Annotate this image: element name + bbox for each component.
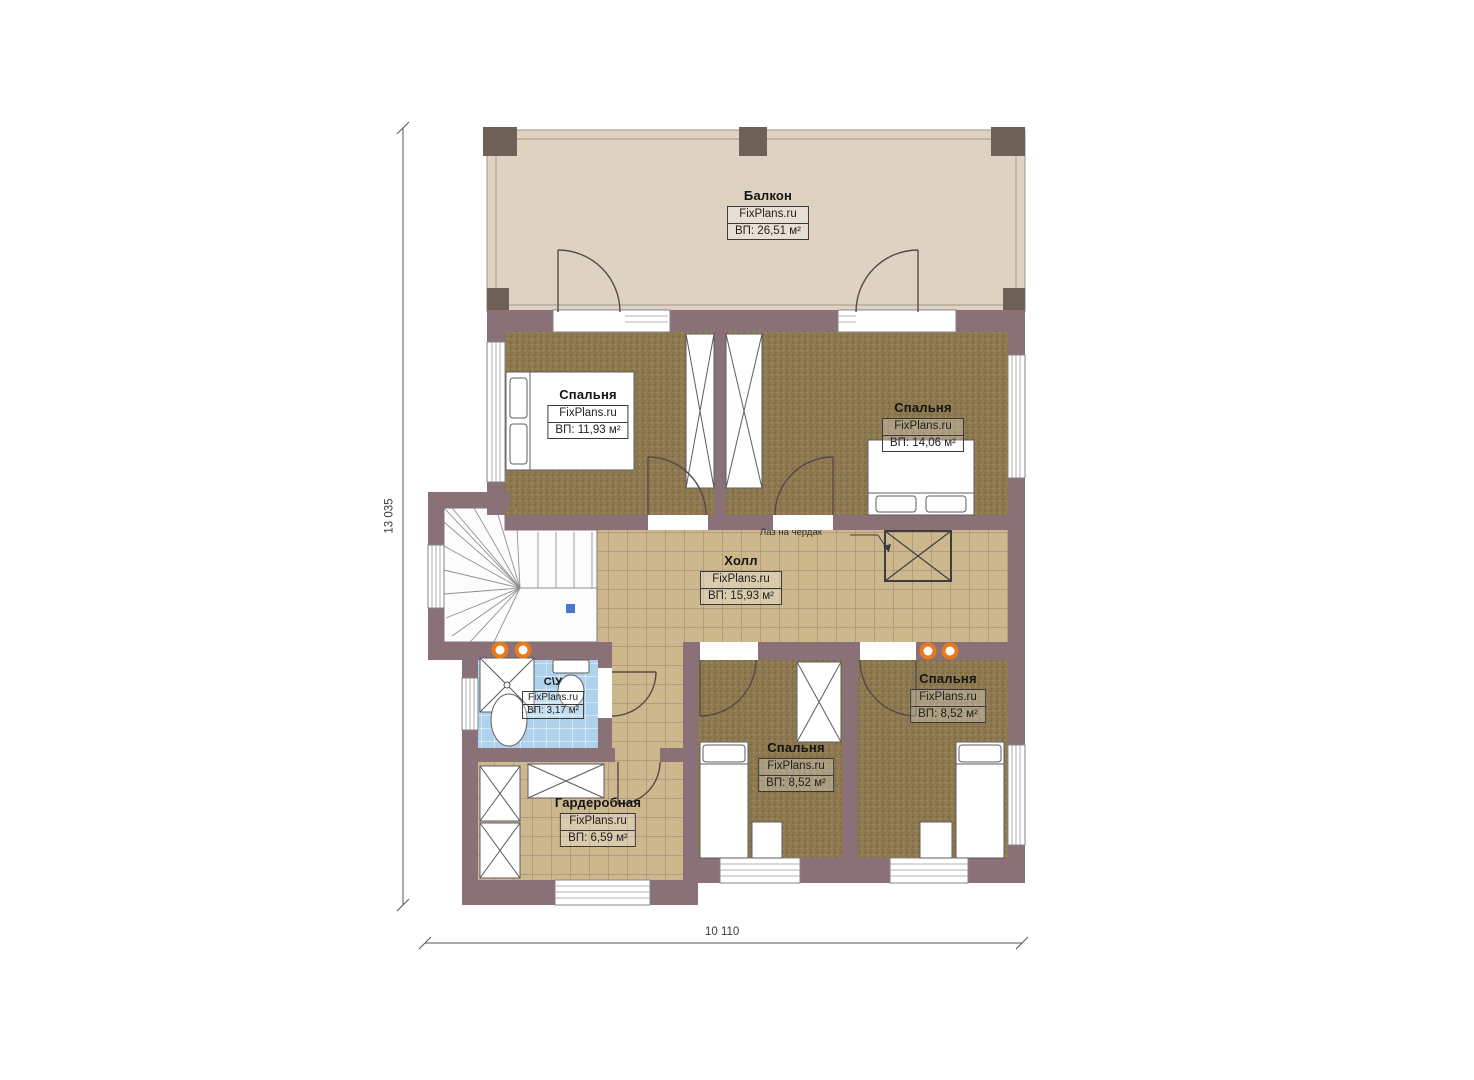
room-info-box: FixPlans.ru ВП: 8,52 м² xyxy=(758,758,834,792)
room-brand: FixPlans.ru xyxy=(759,759,833,775)
room-area: ВП: 14,06 м² xyxy=(883,436,963,451)
attic-hatch-annotation: Лаз на чердак xyxy=(760,527,822,538)
closet-bottom-middle-bedroom xyxy=(797,662,841,742)
room-area: ВП: 3,17 м² xyxy=(523,705,583,718)
room-area: ВП: 15,93 м² xyxy=(701,589,781,604)
room-label-bedroom-bottom-middle: Спальня FixPlans.ru ВП: 8,52 м² xyxy=(758,740,834,792)
room-brand: FixPlans.ru xyxy=(523,692,583,706)
room-area: ВП: 8,52 м² xyxy=(911,707,985,722)
floor-plan-page: Балкон FixPlans.ru ВП: 26,51 м² Спальня … xyxy=(0,0,1474,1080)
room-name: Спальня xyxy=(910,671,986,687)
room-name: Балкон xyxy=(727,188,809,204)
room-brand: FixPlans.ru xyxy=(561,814,635,830)
room-info-box: FixPlans.ru ВП: 8,52 м² xyxy=(910,689,986,723)
room-info-box: FixPlans.ru ВП: 15,93 м² xyxy=(700,571,782,605)
room-name: С\У xyxy=(522,676,584,690)
room-area: ВП: 11,93 м² xyxy=(548,423,627,438)
closet-top-left-bedroom xyxy=(686,334,714,488)
floor-plan-drawing xyxy=(0,0,1474,1080)
floor-hall xyxy=(597,530,1008,642)
room-info-box: FixPlans.ru ВП: 14,06 м² xyxy=(882,418,964,452)
room-label-wardrobe: Гардеробная FixPlans.ru ВП: 6,59 м² xyxy=(555,795,641,847)
nightstand xyxy=(920,822,952,858)
room-name: Спальня xyxy=(547,387,628,403)
room-brand: FixPlans.ru xyxy=(911,690,985,706)
room-name: Холл xyxy=(700,553,782,569)
room-info-box: FixPlans.ru ВП: 3,17 м² xyxy=(522,691,584,719)
closet-top-right-bedroom xyxy=(726,334,762,488)
closet-wardrobe-top xyxy=(528,764,604,798)
room-brand: FixPlans.ru xyxy=(548,406,627,422)
closet-wardrobe-left-2 xyxy=(480,823,520,878)
dimension-height: 13 035 xyxy=(384,498,396,533)
room-name: Спальня xyxy=(758,740,834,756)
room-info-box: FixPlans.ru ВП: 11,93 м² xyxy=(547,405,628,439)
room-info-box: FixPlans.ru ВП: 6,59 м² xyxy=(560,813,636,847)
room-info-box: FixPlans.ru ВП: 26,51 м² xyxy=(727,206,809,240)
room-area: ВП: 8,52 м² xyxy=(759,776,833,791)
room-area: ВП: 6,59 м² xyxy=(561,831,635,846)
nightstand xyxy=(752,822,782,858)
room-name: Гардеробная xyxy=(555,795,641,811)
floor-corridor xyxy=(612,642,683,762)
room-label-bathroom: С\У FixPlans.ru ВП: 3,17 м² xyxy=(522,676,584,719)
room-label-bedroom-bottom-right: Спальня FixPlans.ru ВП: 8,52 м² xyxy=(910,671,986,723)
stair-marker xyxy=(566,604,575,613)
room-area: ВП: 26,51 м² xyxy=(728,224,808,239)
room-label-bedroom-top-left: Спальня FixPlans.ru ВП: 11,93 м² xyxy=(547,387,628,439)
dimension-width: 10 110 xyxy=(705,926,739,938)
closet-wardrobe-left-1 xyxy=(480,766,520,821)
room-label-bedroom-top-right: Спальня FixPlans.ru ВП: 14,06 м² xyxy=(882,400,964,452)
room-brand: FixPlans.ru xyxy=(883,419,963,435)
room-brand: FixPlans.ru xyxy=(728,207,808,223)
room-brand: FixPlans.ru xyxy=(701,572,781,588)
room-label-balcony: Балкон FixPlans.ru ВП: 26,51 м² xyxy=(727,188,809,240)
room-label-hall: Холл FixPlans.ru ВП: 15,93 м² xyxy=(700,553,782,605)
room-name: Спальня xyxy=(882,400,964,416)
